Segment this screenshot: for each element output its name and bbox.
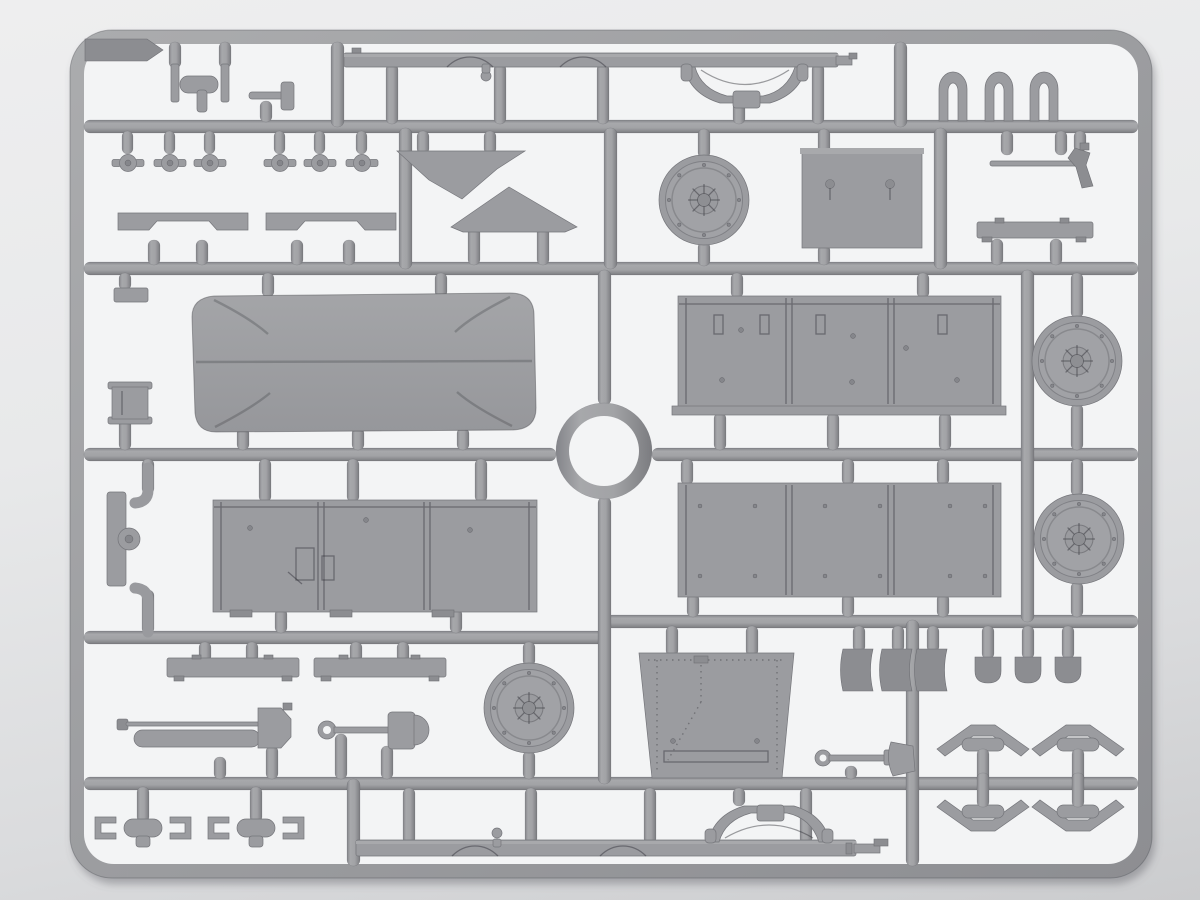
screenshot-root xyxy=(0,0,1200,900)
gate-stub xyxy=(1071,273,1083,318)
gate-stub xyxy=(714,413,726,450)
gate-stub xyxy=(457,428,469,450)
gate-stub xyxy=(812,64,824,124)
runner-v xyxy=(1021,270,1034,622)
gate-stub xyxy=(475,459,487,502)
runner-v xyxy=(598,497,611,784)
gate-stub xyxy=(991,239,1003,265)
gate-stub xyxy=(1071,582,1083,617)
gate-stub xyxy=(892,626,904,652)
gate-stub xyxy=(214,757,226,779)
gate-stub xyxy=(687,594,699,617)
gate-stub xyxy=(698,242,710,266)
gate-stub xyxy=(335,734,347,779)
gate-stub xyxy=(937,459,949,485)
gate-stub xyxy=(343,240,355,265)
gate-stub xyxy=(356,131,367,154)
gate-stub xyxy=(746,626,758,656)
gate-stub xyxy=(982,626,994,659)
wheel-4 xyxy=(484,663,574,753)
flatbed-side-inner xyxy=(678,483,1001,597)
gate-stub xyxy=(597,64,609,124)
canvas-tilt xyxy=(192,293,536,432)
gate-stub xyxy=(853,626,865,652)
gate-stub xyxy=(1055,131,1067,155)
small-bar xyxy=(114,288,148,302)
gate-stub xyxy=(917,273,929,298)
gate-stub xyxy=(196,240,208,265)
gate-stub xyxy=(204,131,215,154)
fender-bands xyxy=(841,649,948,691)
flatbed-side-left xyxy=(213,500,537,617)
sprue-photo xyxy=(0,0,1200,900)
gate-stub xyxy=(666,626,678,656)
gate-stub xyxy=(1050,239,1062,265)
runner-v xyxy=(331,42,344,127)
flatbed-side-outer xyxy=(672,296,1006,415)
gate-stub xyxy=(260,101,272,122)
gate-stub xyxy=(122,131,133,154)
gate-stub xyxy=(484,131,496,154)
gate-stub xyxy=(939,413,951,450)
gate-stub xyxy=(845,766,857,779)
tailgate-panel xyxy=(639,653,794,778)
gate-stub xyxy=(119,273,131,290)
wheel-3 xyxy=(1034,494,1124,584)
wheel-1 xyxy=(659,155,749,245)
runner-v xyxy=(399,128,412,269)
runner-v xyxy=(604,128,617,269)
gate-stub xyxy=(733,788,745,806)
wheel-2 xyxy=(1032,316,1122,406)
gate-stub xyxy=(314,131,325,154)
runner-h xyxy=(84,448,556,461)
runner-v xyxy=(894,42,907,127)
gate-stub xyxy=(523,751,535,779)
gate-stub xyxy=(842,459,854,485)
gate-stub xyxy=(1071,404,1083,450)
gate-stub xyxy=(164,131,175,154)
gate-stub xyxy=(681,459,693,485)
gate-stub xyxy=(842,594,854,617)
gate-stub xyxy=(417,131,429,154)
gate-stub xyxy=(494,64,506,124)
runner-h xyxy=(652,448,1138,461)
gate-stub xyxy=(262,273,274,297)
gate-stub xyxy=(731,273,743,298)
gate-stub xyxy=(403,788,415,844)
gate-stub xyxy=(523,642,535,666)
gate-stub xyxy=(386,64,398,124)
runner-h xyxy=(606,615,1138,628)
gate-stub xyxy=(291,240,303,265)
gate-stub xyxy=(1071,459,1083,496)
gate-stub xyxy=(1062,626,1074,659)
runner-v xyxy=(598,270,611,405)
gate-stub xyxy=(274,131,285,154)
cab-rear-panel xyxy=(800,148,924,248)
gate-stub xyxy=(259,459,271,502)
runner-v xyxy=(934,128,947,269)
gate-stub xyxy=(927,626,939,652)
gate-stub xyxy=(1001,131,1013,155)
gate-stub xyxy=(266,746,278,779)
gate-stub xyxy=(827,413,839,450)
sprue-group xyxy=(70,30,1152,878)
gate-stub xyxy=(537,227,549,265)
gate-stub xyxy=(644,788,656,844)
gate-stub xyxy=(275,609,287,633)
gate-stub xyxy=(347,459,359,502)
gate-stub xyxy=(937,594,949,617)
runner-ring xyxy=(556,403,652,499)
gate-stub xyxy=(148,240,160,265)
small-box xyxy=(108,382,152,424)
gate-stub xyxy=(1022,626,1034,659)
gate-stub xyxy=(468,227,480,265)
gate-stub xyxy=(525,788,537,844)
corner-tab xyxy=(85,39,163,61)
gate-stub xyxy=(381,746,393,779)
gate-stub xyxy=(698,129,710,158)
seat-tabs xyxy=(975,657,1081,683)
